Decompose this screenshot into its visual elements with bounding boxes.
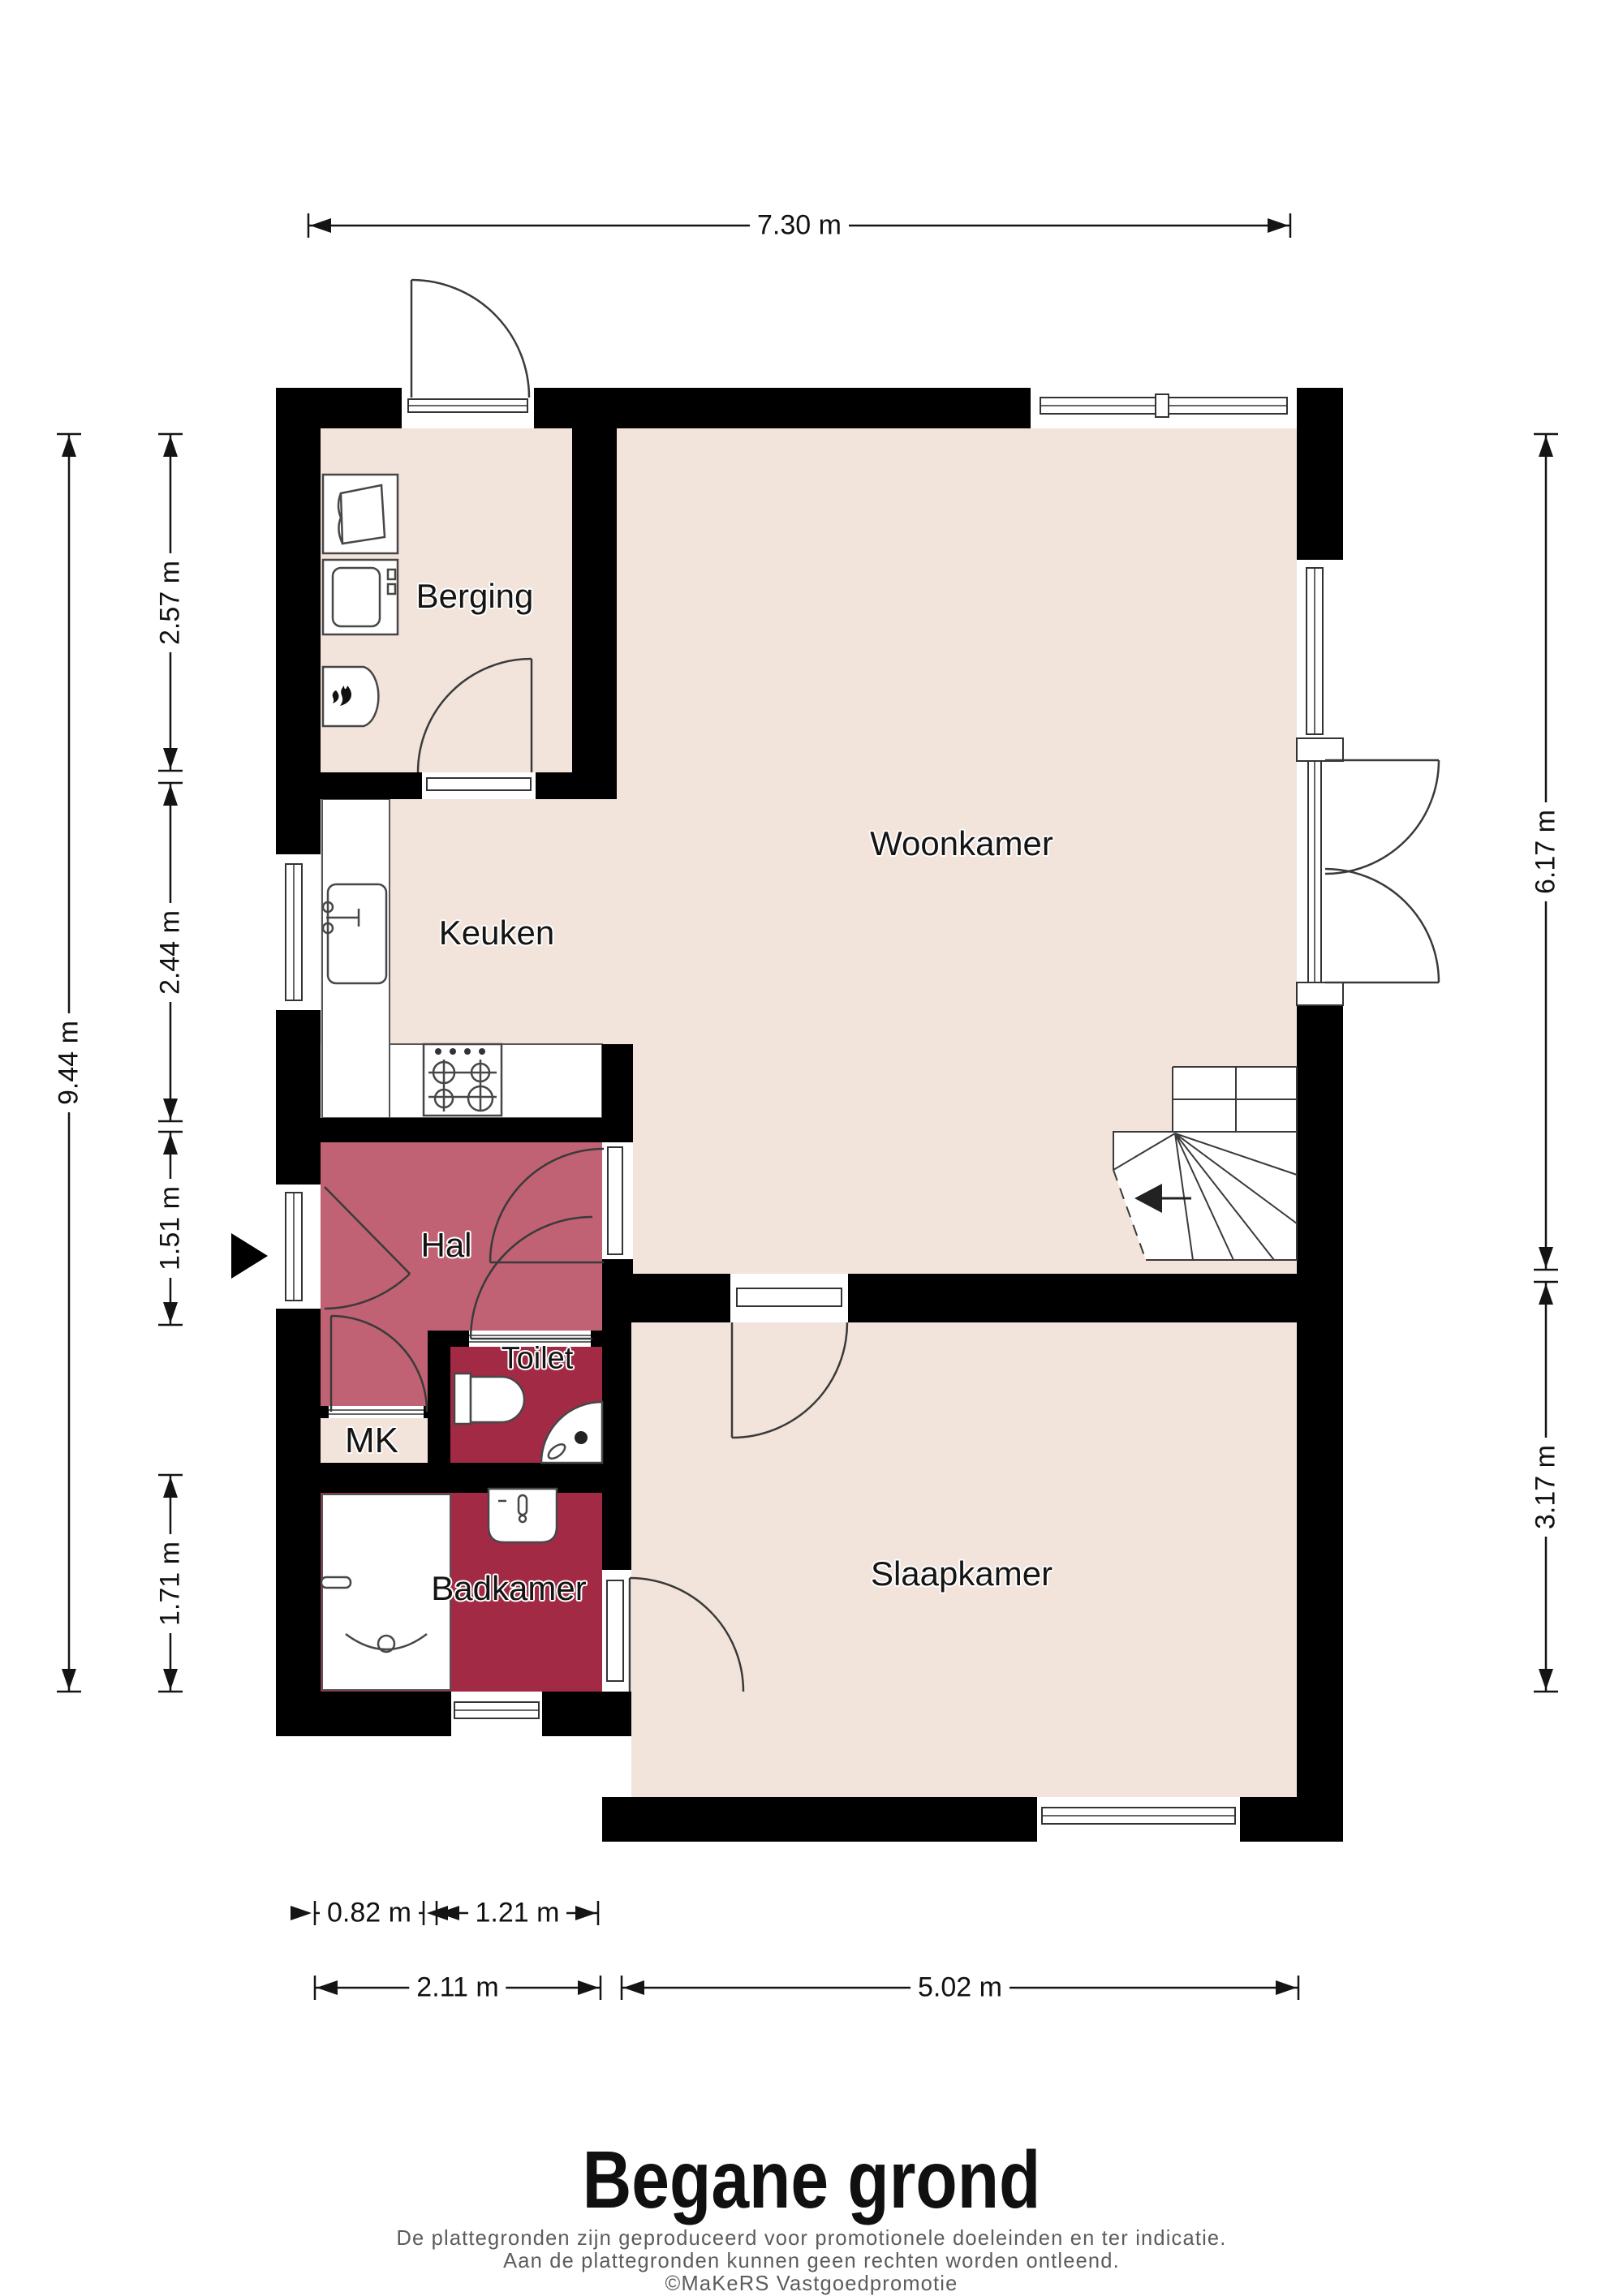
dimension-left-berging <box>158 434 183 771</box>
stove-icon <box>424 1044 502 1116</box>
door-sill <box>1297 738 1343 761</box>
dimension-height-total <box>57 434 81 1692</box>
shower-area <box>322 1494 450 1690</box>
entrance-arrow-icon <box>231 1233 268 1279</box>
dimension-right-woonkamer <box>1534 434 1558 1270</box>
window-icon <box>276 854 321 1010</box>
door-threshold <box>422 772 536 799</box>
dimension-bottom-left <box>315 1976 601 2000</box>
dimension-left-badkamer <box>158 1475 183 1692</box>
door-threshold <box>602 1142 633 1259</box>
dimension-left-keuken <box>158 783 183 1121</box>
dimension-bottom-slaapkamer <box>622 1976 1298 2000</box>
room-mk-floor <box>321 1418 428 1463</box>
dimension-bottom-toilet <box>437 1901 598 1925</box>
laundry-basket-icon <box>323 475 398 553</box>
boiler-icon <box>323 667 378 726</box>
dimension-left-hal <box>158 1132 183 1325</box>
floorplan-page: { "title": "Begane grond", "footer": { "… <box>0 0 1623 2296</box>
toilet-icon <box>454 1374 524 1424</box>
kitchen-sink-icon <box>323 884 386 983</box>
door-threshold <box>730 1274 848 1322</box>
berging-entrance-door <box>411 280 529 398</box>
window-icon <box>1031 388 1297 428</box>
dimension-right-slaapkamer <box>1534 1282 1558 1692</box>
door-threshold <box>602 1570 631 1692</box>
door-threshold <box>402 388 534 428</box>
floor-plan-canvas <box>0 0 1623 2296</box>
room-hal-floor <box>321 1331 428 1406</box>
washing-machine-icon <box>323 560 398 634</box>
dimension-width-total <box>308 213 1290 238</box>
window-icon <box>1308 761 1321 982</box>
window-icon <box>1037 1797 1240 1842</box>
french-doors <box>1325 760 1439 982</box>
front-door-threshold <box>276 1185 321 1309</box>
door-threshold <box>329 1406 424 1418</box>
door-sill <box>1297 982 1343 1005</box>
window-icon <box>1297 560 1343 742</box>
window-icon <box>451 1692 542 1736</box>
dimension-bottom-mk <box>291 1901 448 1925</box>
washbasin-icon <box>489 1489 557 1542</box>
